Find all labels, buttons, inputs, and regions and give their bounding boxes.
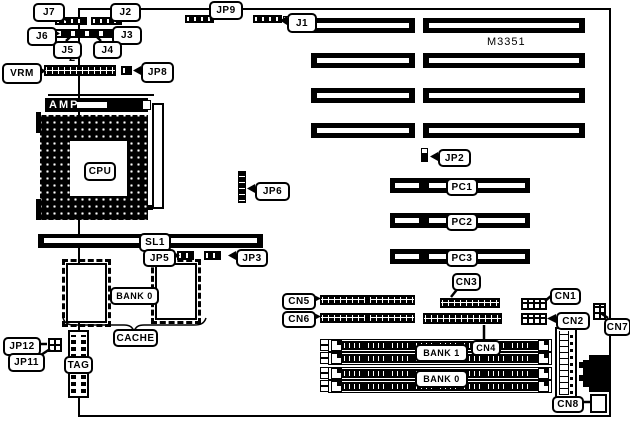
callout-pc2: PC2 <box>446 213 478 231</box>
callout-j1: J1 <box>287 13 317 33</box>
callout-j5: J5 <box>53 41 82 59</box>
leader-lines <box>0 0 630 422</box>
callout-cn7: CN7 <box>604 318 630 336</box>
callout-cpu: CPU <box>84 162 116 181</box>
callout-jp11: JP11 <box>8 353 45 372</box>
callout-jp3: JP3 <box>236 249 268 267</box>
callout-j2: J2 <box>110 3 141 22</box>
callout-cn6: CN6 <box>282 311 316 328</box>
callout-cn1: CN1 <box>550 288 581 305</box>
callout-cache: CACHE <box>113 329 158 347</box>
callout-bank0-cache: BANK 0 <box>110 287 159 305</box>
callout-jp5: JP5 <box>143 249 176 267</box>
callout-jp8: JP8 <box>141 62 174 83</box>
callout-cn8: CN8 <box>552 396 584 413</box>
callout-cn2: CN2 <box>556 312 590 330</box>
callout-j7: J7 <box>33 3 65 22</box>
motherboard-diagram: J7 J2 J6 J3 J5 J4 JP9 J1 2 VRM JP8 M3351… <box>0 0 630 422</box>
callout-vrm: VRM <box>2 63 42 84</box>
callout-bank0-simm: BANK 0 <box>415 370 468 388</box>
callout-pc3: PC3 <box>446 249 478 267</box>
callout-pc1: PC1 <box>446 178 478 196</box>
callout-cn5: CN5 <box>282 293 316 310</box>
callout-tag: TAG <box>64 356 93 374</box>
callout-jp2: JP2 <box>438 149 471 167</box>
callout-bank1-simm: BANK 1 <box>415 344 468 362</box>
callout-jp6: JP6 <box>255 182 290 201</box>
callout-cn3: CN3 <box>452 273 481 291</box>
callout-jp9: JP9 <box>209 1 243 20</box>
callout-cn4: CN4 <box>471 340 501 356</box>
callout-j4: J4 <box>93 41 122 59</box>
